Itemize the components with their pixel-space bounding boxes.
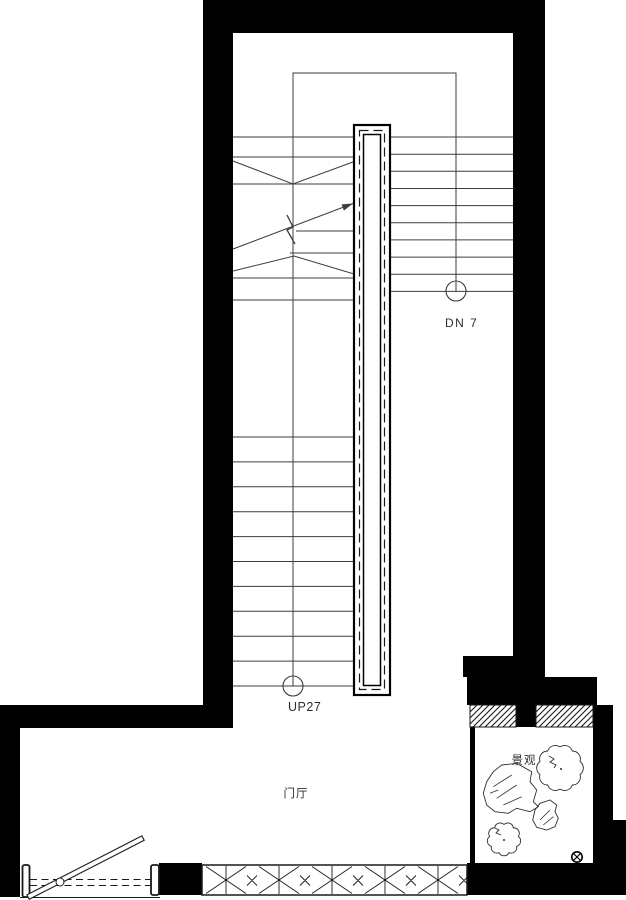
vent-hatch-right [536,705,593,727]
wall-stairwell-bottom-stub [463,656,545,677]
wall-courtyard-right-upper [593,705,613,823]
door-jamb-right [151,865,159,895]
courtyard-label: 景观 [512,754,537,767]
wall-stairwell-right [513,0,545,677]
tree-small-center-dot [503,839,505,841]
door-jamb-left [23,865,30,897]
wall-stairwell-left [203,0,233,728]
wall-foyer-courtyard-divider [470,727,475,863]
wall-courtyard-pier [516,705,536,727]
wall-courtyard-top [467,677,597,705]
window-x-strip [202,865,469,895]
wall-courtyard-bottom [467,863,626,895]
wall-foyer-bottom-segment [159,863,202,895]
door-pivot-circle [56,878,64,886]
up-label: UP27 [288,700,321,714]
handrail [354,125,390,695]
vent-hatch-left [470,705,516,727]
wall-foyer-left [0,705,20,897]
foyer-label: 门厅 [284,786,309,800]
stair-floor-plan: DN 7 UP27 门厅 景观 [0,0,626,900]
wall-stairwell-top [203,0,545,33]
wall-foyer-top [0,705,203,728]
tree-large-center-dot [560,768,562,770]
down-label: DN 7 [445,316,478,330]
